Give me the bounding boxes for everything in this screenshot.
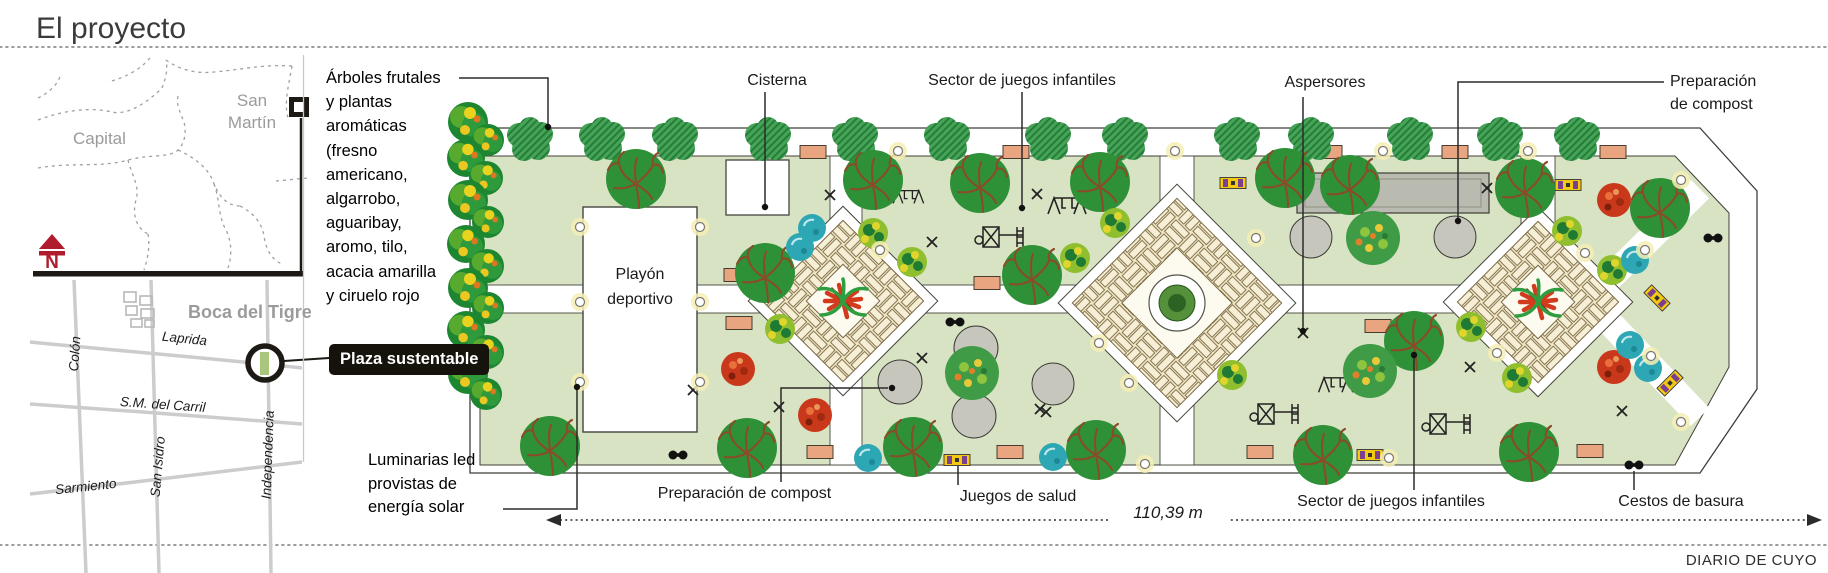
san-martin-marker-icon	[289, 97, 309, 271]
label-playground-top: Sector de juegos infantiles	[902, 71, 1142, 92]
map-label-district: Boca del Tigre	[188, 301, 312, 324]
label-sprinklers: Aspersores	[1266, 73, 1384, 94]
lights-note-line: energía solar	[368, 496, 475, 520]
trees-note-line: aguaribay,	[326, 211, 441, 235]
trees-note-line: aromo, tilo,	[326, 235, 441, 259]
map-divider-bar	[33, 271, 303, 277]
label-trash-bins: Cestos de basura	[1592, 492, 1770, 513]
lights-note-line: Luminarias led	[368, 449, 475, 473]
label-court-line: deportivo	[583, 287, 697, 312]
trees-note-line: americano,	[326, 163, 441, 187]
label-cisterna: Cisterna	[727, 71, 827, 92]
source-credit: DIARIO DE CUYO	[1620, 551, 1817, 571]
compass-letter: N	[39, 253, 65, 272]
trees-note: Árboles frutales y plantas aromáticas (f…	[326, 66, 441, 308]
trees-note-line: y ciruelo rojo	[326, 284, 441, 308]
trees-note-line: aromáticas	[326, 114, 441, 138]
trees-note-line: Árboles frutales	[326, 66, 441, 90]
map-label-capital: Capital	[73, 128, 126, 150]
label-court-line: Playón	[583, 262, 697, 287]
label-length-dimension: 110,39 m	[1108, 502, 1228, 524]
lights-note-line: provistas de	[368, 473, 475, 497]
label-compost-top-line: de compost	[1670, 93, 1756, 116]
label-compost-bottom: Preparación de compost	[622, 484, 867, 505]
label-sports-court: Playón deportivo	[583, 262, 697, 312]
trees-note-line: acacia amarilla	[326, 260, 441, 284]
map-label-san-martin: San Martín	[212, 90, 292, 134]
street-label-independencia: Independencia	[257, 404, 278, 505]
location-marker-icon	[248, 346, 329, 380]
label-compost-top: Preparación de compost	[1670, 70, 1756, 116]
sports-court	[583, 207, 697, 432]
infographic-canvas: El proyecto Capital San Martín N Boca de…	[0, 0, 1828, 573]
label-compost-top-line: Preparación	[1670, 70, 1756, 93]
label-playground-bottom: Sector de juegos infantiles	[1266, 492, 1516, 513]
cistern-structure	[726, 160, 789, 215]
plaza-callout: Plaza sustentable	[329, 344, 489, 375]
page-title: El proyecto	[36, 9, 186, 48]
trees-note-line: (fresno	[326, 139, 441, 163]
lights-note: Luminarias led provistas de energía sola…	[368, 449, 475, 520]
label-health-games: Juegos de salud	[940, 487, 1096, 508]
fountain-planter	[1149, 275, 1205, 331]
trees-note-line: algarrobo,	[326, 187, 441, 211]
buildings-icon	[124, 292, 154, 327]
trees-note-line: y plantas	[326, 90, 441, 114]
